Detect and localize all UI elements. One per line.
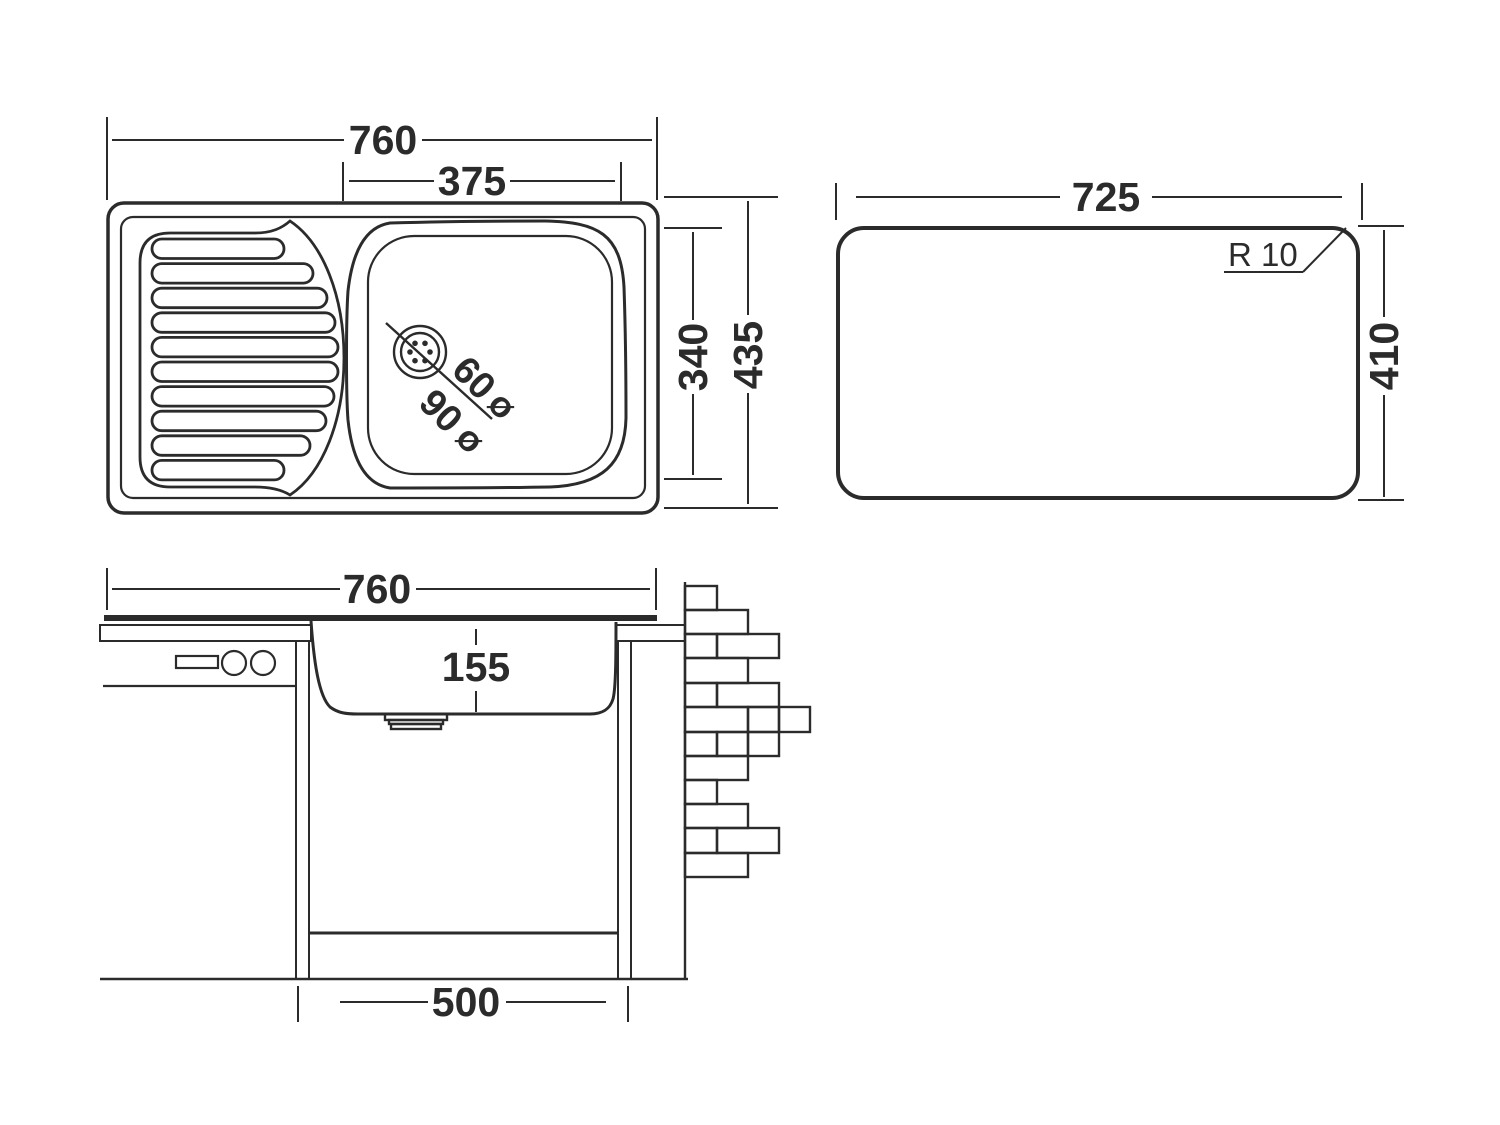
drain-fitting — [385, 714, 447, 729]
brick — [717, 732, 748, 756]
bowl-inner-edge — [368, 236, 612, 474]
dim-cutout-depth-label: 410 — [1361, 322, 1407, 390]
drainboard-rib — [152, 288, 327, 308]
brick — [779, 707, 810, 732]
brick — [717, 634, 779, 658]
dim-section-bowl-depth-label: 155 — [442, 644, 510, 690]
dim-top-total-width-label: 760 — [349, 117, 417, 163]
appliance-knob — [251, 651, 275, 675]
drainboard-rib — [152, 264, 313, 284]
drain-hole-diameter-symbol: Ø — [481, 390, 518, 427]
brick-wall — [685, 586, 810, 877]
drainboard-ribs — [152, 239, 338, 480]
cabinet-wall-left — [296, 641, 309, 979]
brick — [685, 658, 748, 683]
drainboard-rib — [152, 387, 334, 407]
drawing-canvas: 60 Ø 90 Ø 760 375 340 — [0, 0, 1500, 1125]
brick — [685, 707, 748, 732]
countertop-left — [100, 625, 311, 641]
drain-holes — [407, 341, 433, 364]
countertop-right — [616, 625, 685, 641]
brick — [685, 610, 748, 634]
drainboard-rib — [152, 436, 310, 456]
brick — [685, 683, 717, 707]
cutout-view: 725 R 10 410 — [836, 174, 1407, 500]
dim-section-width-label: 760 — [343, 566, 411, 612]
brick — [685, 732, 717, 756]
drainboard-rib — [152, 411, 326, 431]
appliance-front-symbols — [103, 651, 296, 686]
drainboard-rib — [152, 362, 338, 382]
sink-rim-flange — [104, 615, 657, 621]
drain-flange-diameter-symbol: Ø — [449, 424, 486, 461]
brick — [717, 683, 779, 707]
brick — [685, 586, 717, 610]
drainboard-rib — [152, 313, 335, 333]
brick — [685, 634, 717, 658]
sink-top-view: 60 Ø 90 Ø 760 375 340 — [107, 117, 778, 513]
appliance-knob — [222, 651, 246, 675]
drainboard-rib — [152, 239, 284, 259]
drainboard-rib — [152, 460, 284, 480]
brick — [685, 756, 748, 780]
bowl-outline — [347, 221, 627, 488]
cabinet-wall-right — [618, 641, 631, 979]
brick — [748, 707, 779, 732]
dim-bowl-depth-label: 340 — [670, 323, 716, 391]
brick — [685, 804, 748, 828]
drainboard-rib — [152, 337, 338, 357]
brick — [685, 828, 717, 853]
brick — [748, 732, 779, 756]
technical-drawing: 60 Ø 90 Ø 760 375 340 — [0, 0, 1500, 1125]
brick — [685, 853, 748, 877]
appliance-handle — [176, 656, 218, 668]
dim-top-total-depth-label: 435 — [725, 321, 771, 389]
section-view: 760 155 — [100, 566, 810, 1025]
dim-cabinet-width-label: 500 — [432, 979, 500, 1025]
corner-radius-label: R 10 — [1228, 236, 1298, 273]
brick — [717, 828, 779, 853]
dim-cutout-width-label: 725 — [1072, 174, 1140, 220]
brick — [685, 780, 717, 804]
dim-bowl-width-label: 375 — [438, 158, 506, 204]
